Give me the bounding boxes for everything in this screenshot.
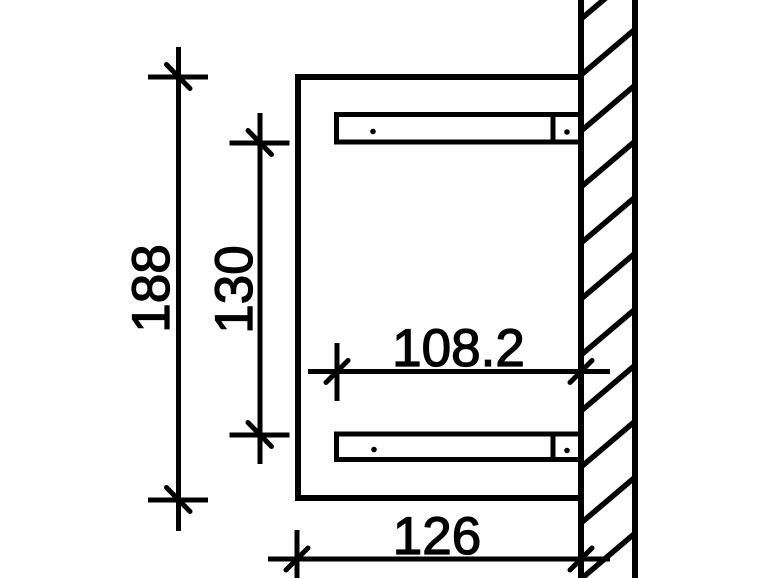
svg-text:108.2: 108.2 [392,319,525,378]
svg-text:126: 126 [393,507,481,566]
svg-text:188: 188 [122,244,181,332]
svg-text:130: 130 [205,245,264,333]
